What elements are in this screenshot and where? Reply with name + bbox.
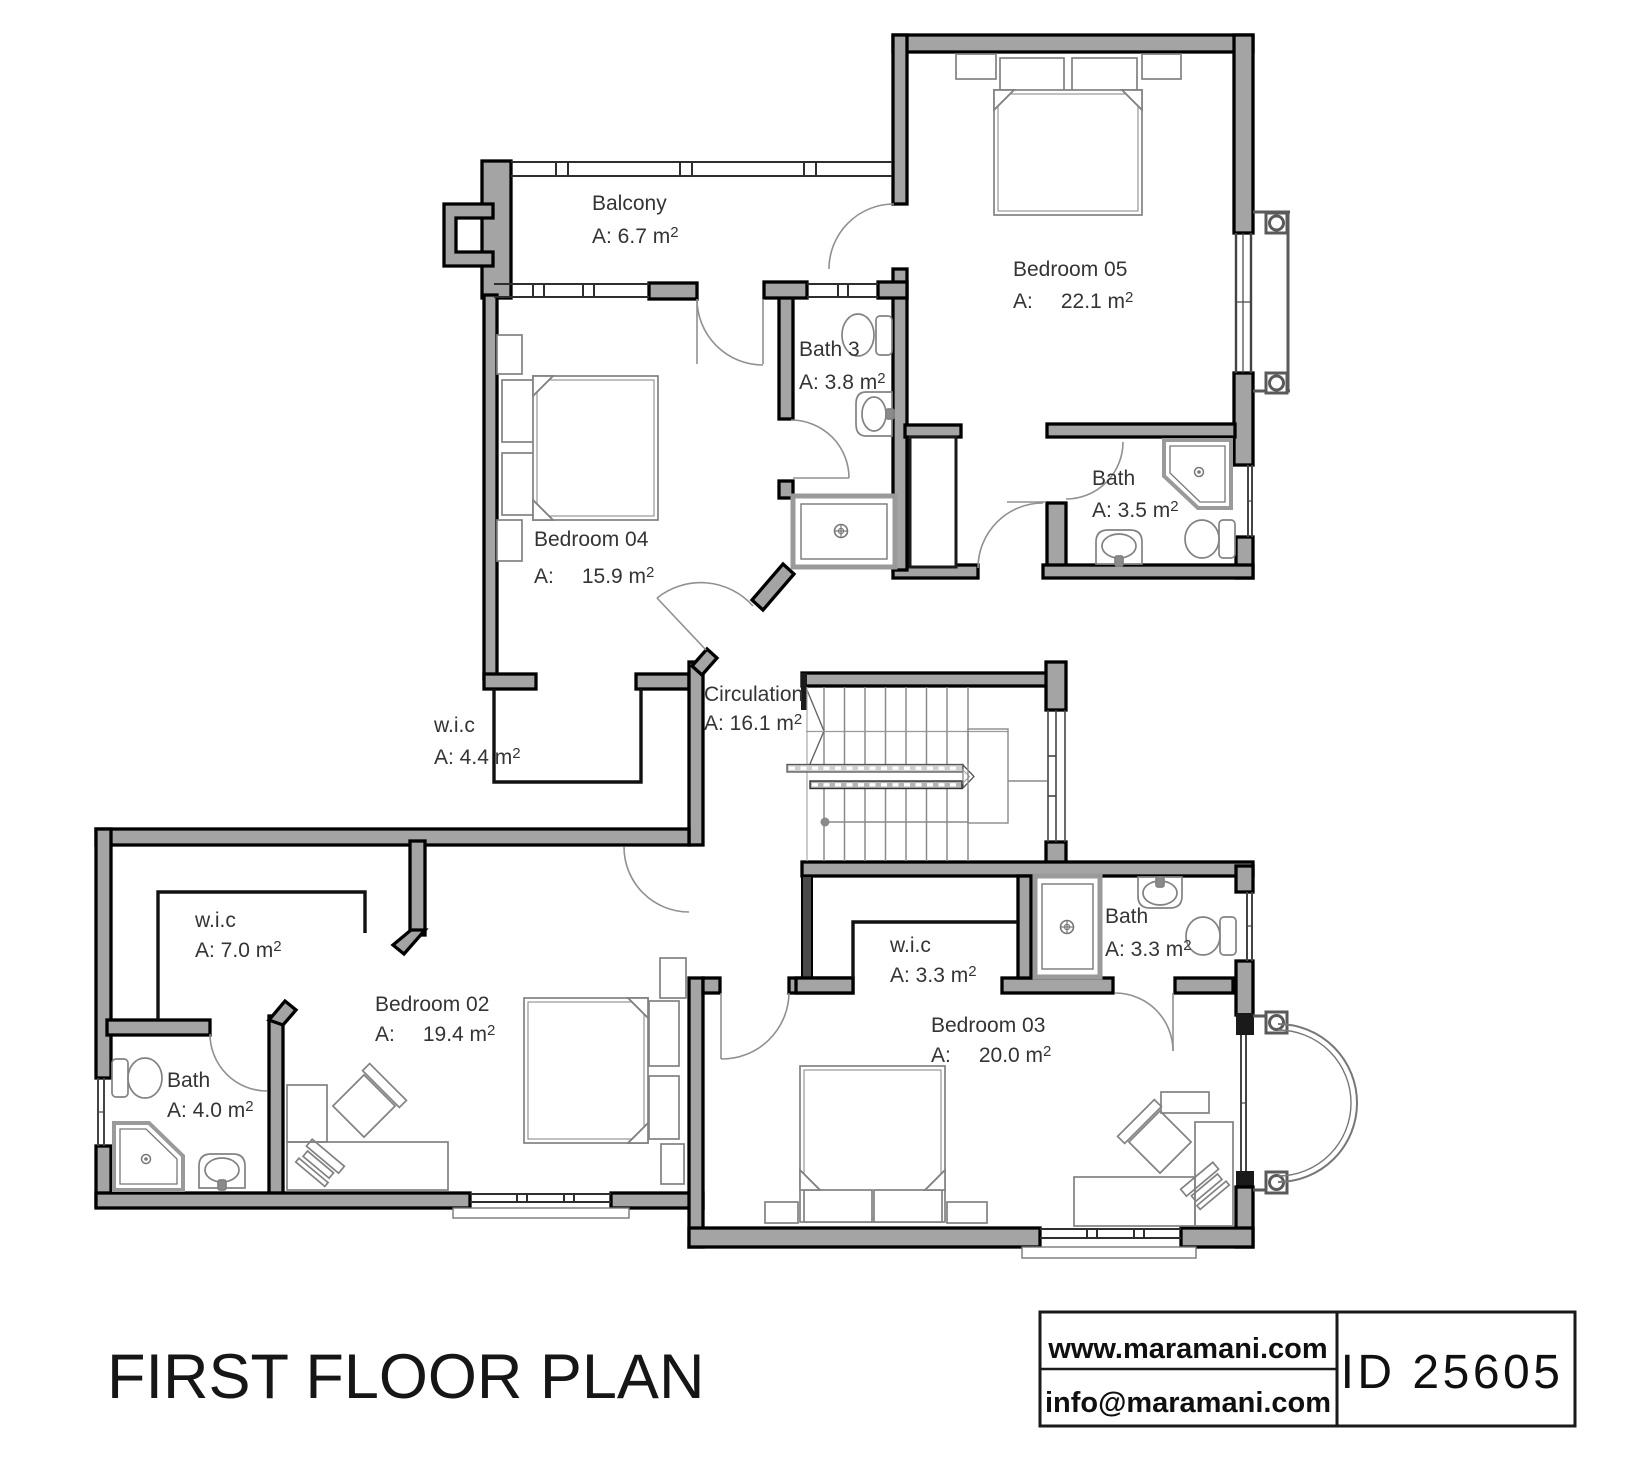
svg-text:w.i.c: w.i.c [194,909,236,932]
svg-text:w.i.c: w.i.c [433,714,475,737]
svg-text:Bath 3: Bath 3 [799,338,860,361]
svg-text:A:15.9 m2: A:15.9 m2 [534,564,654,588]
svg-text:A: 3.3 m2: A: 3.3 m2 [890,963,977,987]
svg-text:A:19.4 m2: A:19.4 m2 [375,1022,495,1046]
svg-text:FIRST FLOOR PLAN: FIRST FLOOR PLAN [107,1342,704,1412]
svg-text:Bedroom 05: Bedroom 05 [1013,258,1127,281]
svg-text:Bath: Bath [167,1069,210,1092]
svg-text:A: 3.3 m2: A: 3.3 m2 [1105,937,1192,961]
svg-text:A: 4.0 m2: A: 4.0 m2 [167,1098,254,1122]
svg-text:www.maramani.com: www.maramani.com [1047,1333,1327,1365]
svg-text:Bath: Bath [1105,905,1148,928]
svg-text:ID 25605: ID 25605 [1341,1346,1564,1399]
svg-text:Circulation: Circulation [704,683,803,706]
svg-text:Balcony: Balcony [592,192,667,215]
svg-text:A: 3.8 m2: A: 3.8 m2 [799,370,886,394]
svg-text:Bedroom 02: Bedroom 02 [375,993,489,1016]
svg-text:A: 6.7 m2: A: 6.7 m2 [592,224,679,248]
svg-text:A:20.0 m2: A:20.0 m2 [931,1043,1051,1067]
svg-text:A: 7.0 m2: A: 7.0 m2 [195,938,282,962]
svg-text:Bedroom 03: Bedroom 03 [931,1014,1045,1037]
svg-text:A:22.1 m2: A:22.1 m2 [1013,289,1133,313]
svg-text:Bath: Bath [1092,467,1135,490]
svg-text:info@maramani.com: info@maramani.com [1045,1387,1331,1419]
svg-text:A: 4.4 m2: A: 4.4 m2 [434,745,521,769]
svg-text:A: 3.5 m2: A: 3.5 m2 [1092,498,1179,522]
svg-text:A: 16.1 m2: A: 16.1 m2 [704,711,802,735]
svg-text:Bedroom 04: Bedroom 04 [534,528,649,551]
svg-text:w.i.c: w.i.c [889,934,931,957]
